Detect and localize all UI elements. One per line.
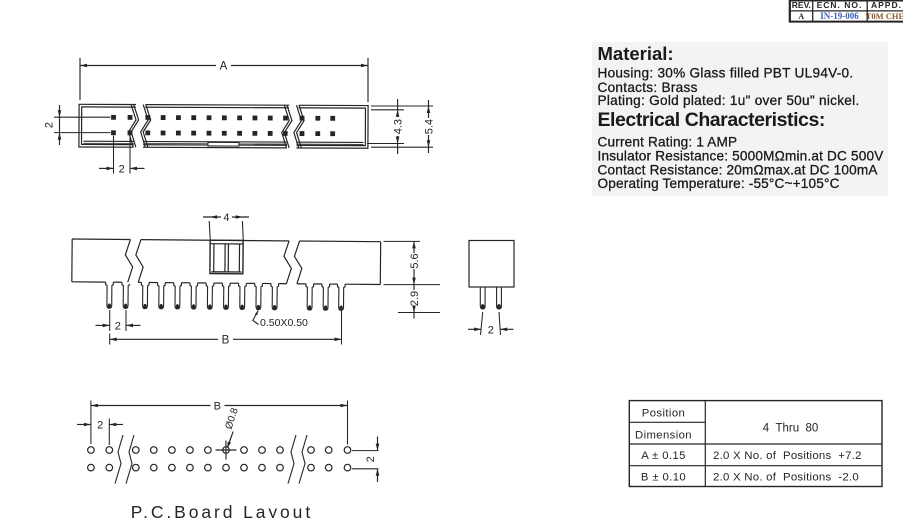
svg-text:B ± 0.10: B ± 0.10 bbox=[641, 472, 686, 484]
svg-text:Plating: Gold plated: 1u" over: Plating: Gold plated: 1u" over 50u" nick… bbox=[598, 93, 860, 108]
svg-text:B: B bbox=[222, 334, 230, 346]
svg-text:5.6: 5.6 bbox=[409, 253, 421, 268]
svg-text:B: B bbox=[214, 401, 221, 413]
svg-text:Operating Temperature: -55°C~+: Operating Temperature: -55°C~+105°C bbox=[598, 176, 840, 191]
svg-text:0.50X0.50: 0.50X0.50 bbox=[260, 317, 308, 329]
svg-text:Insulator Resistance: 5000MΩmi: Insulator Resistance: 5000MΩmin.at DC 50… bbox=[598, 149, 884, 164]
svg-text:2: 2 bbox=[115, 320, 121, 332]
svg-text:5.4: 5.4 bbox=[423, 119, 435, 134]
svg-text:A: A bbox=[798, 12, 804, 21]
svg-text:REV.: REV. bbox=[792, 0, 811, 10]
svg-text:2.0 X No. of Positions -2.0: 2.0 X No. of Positions -2.0 bbox=[713, 472, 859, 484]
svg-text:APPD.: APPD. bbox=[871, 0, 902, 10]
svg-text:2: 2 bbox=[119, 163, 125, 175]
svg-text:2: 2 bbox=[488, 324, 494, 336]
svg-text:Position: Position bbox=[642, 408, 685, 420]
svg-text:4 Thru 80: 4 Thru 80 bbox=[763, 423, 819, 435]
svg-text:Housing: 30% Glass filled PBT: Housing: 30% Glass filled PBT UL94V-0. bbox=[598, 66, 854, 81]
svg-text:2: 2 bbox=[97, 419, 103, 431]
svg-text:Ø0.8: Ø0.8 bbox=[224, 406, 241, 430]
svg-text:ECN. NO.: ECN. NO. bbox=[817, 0, 863, 10]
svg-text:4.3: 4.3 bbox=[393, 119, 405, 134]
svg-text:A ± 0.15: A ± 0.15 bbox=[641, 450, 686, 462]
svg-text:T0M CHEN: T0M CHEN bbox=[866, 11, 903, 21]
svg-text:Dimension: Dimension bbox=[635, 430, 692, 442]
svg-text:IN-19-006: IN-19-006 bbox=[820, 11, 859, 21]
svg-text:2: 2 bbox=[365, 456, 377, 462]
svg-text:Current Rating: 1 AMP: Current Rating: 1 AMP bbox=[598, 135, 738, 150]
svg-text:2: 2 bbox=[44, 122, 56, 128]
svg-text:P.C.Board Layout: P.C.Board Layout bbox=[131, 502, 313, 518]
svg-text:4: 4 bbox=[223, 212, 229, 224]
svg-text:A: A bbox=[220, 61, 228, 73]
svg-text:Material:: Material: bbox=[598, 43, 674, 64]
svg-text:2.9: 2.9 bbox=[409, 291, 421, 306]
svg-text:2.0 X No. of Positions +7.2: 2.0 X No. of Positions +7.2 bbox=[713, 450, 862, 462]
svg-text:Contact Resistance: 20mΩmax.at: Contact Resistance: 20mΩmax.at DC 100mA bbox=[598, 162, 879, 177]
svg-text:Electrical Characteristics:: Electrical Characteristics: bbox=[598, 109, 825, 131]
